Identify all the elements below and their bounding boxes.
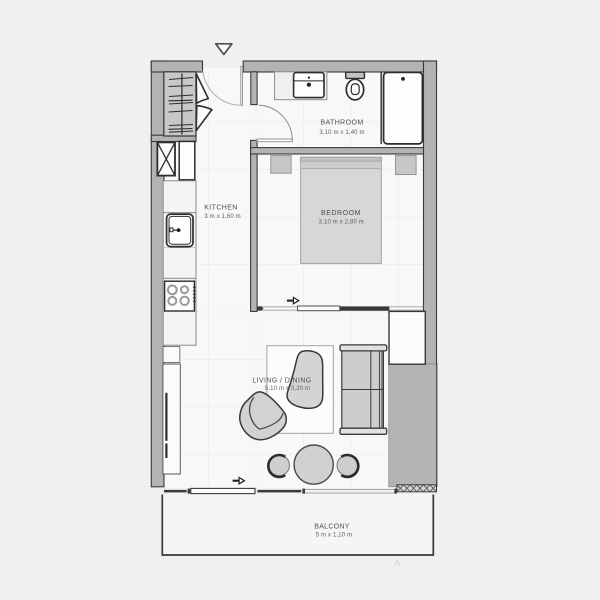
svg-text:BATHROOM: BATHROOM (320, 120, 363, 127)
svg-text:3,10 m x 1,40 m: 3,10 m x 1,40 m (319, 130, 364, 136)
svg-text:5 m x 1,10 m: 5 m x 1,10 m (316, 532, 352, 538)
svg-text:5,10 m x 3,20 m: 5,10 m x 3,20 m (265, 386, 310, 392)
svg-text:KITCHEN: KITCHEN (204, 204, 238, 211)
svg-text:3,10 m x 2,80 m: 3,10 m x 2,80 m (319, 219, 364, 225)
svg-text:BALCONY: BALCONY (314, 524, 350, 531)
svg-text:3 m x 1,60 m: 3 m x 1,60 m (204, 214, 240, 220)
svg-text:BEDROOM: BEDROOM (321, 210, 361, 217)
svg-text:A: A (394, 558, 402, 569)
svg-text:- .----. - . ---: - .----. - . --- (408, 561, 441, 567)
svg-text:LIVING / DINING: LIVING / DINING (252, 377, 311, 384)
